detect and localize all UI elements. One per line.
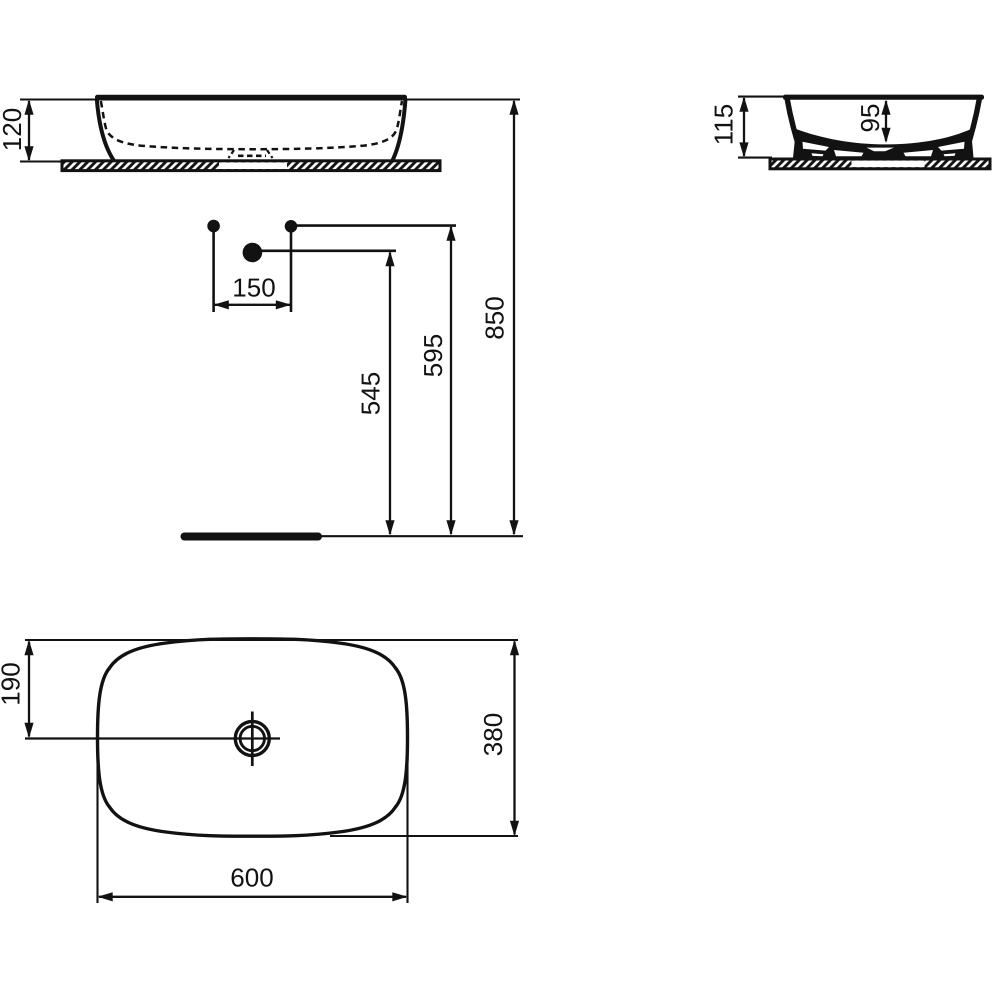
- svg-text:120: 120: [0, 108, 27, 151]
- svg-text:95: 95: [855, 104, 885, 133]
- svg-text:115: 115: [709, 104, 739, 145]
- svg-text:150: 150: [232, 273, 275, 303]
- svg-text:595: 595: [418, 334, 448, 377]
- svg-text:850: 850: [480, 296, 510, 339]
- svg-text:190: 190: [0, 662, 26, 705]
- svg-text:545: 545: [356, 372, 386, 415]
- svg-text:380: 380: [478, 713, 508, 756]
- svg-text:600: 600: [230, 863, 273, 893]
